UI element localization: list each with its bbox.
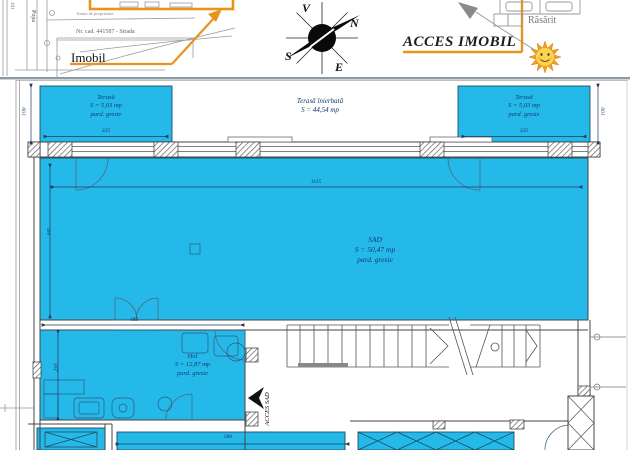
room-label-sad: SAD S = 50,47 mp pard. gresie: [310, 235, 440, 264]
rasarit-label: Răsărit: [528, 14, 556, 27]
room-name: Terasă înierbată: [250, 97, 390, 106]
room-name: Terasă: [458, 94, 590, 102]
dim-terrace-right-height: 100: [600, 102, 607, 122]
room-name: SAD: [310, 235, 440, 245]
acces-imobil-label: ACCES IMOBIL: [403, 33, 516, 53]
street-number-vertical: 101: [8, 2, 15, 10]
room-floor: pard. gresie: [310, 255, 440, 265]
staircase: [287, 317, 540, 375]
boundary-note: limita de proprietate: [77, 11, 114, 17]
imobil-label: Imobil: [71, 50, 106, 67]
floor-plan-screenshot: Imobil Nr. cad. 441587 - Strada limita d…: [0, 0, 630, 450]
wall-leaders: [590, 334, 626, 390]
room-label-terrace-green: Terasă înierbată S = 44,54 mp: [250, 97, 390, 115]
room-area: S = 12,87 mp: [145, 361, 240, 369]
room-name: Hol: [145, 353, 240, 361]
compass-icon: [286, 2, 360, 74]
cadastral-label: Nr. cad. 441587 - Strada: [76, 29, 135, 37]
compass-letter-e: E: [335, 60, 343, 76]
room-label-hol: Hol S = 12,87 mp pard. gresie: [145, 353, 240, 378]
room-floor: pard. gresie: [145, 370, 240, 378]
acces-sad-arrow: [248, 387, 264, 409]
dim-sad-height: 445: [46, 220, 53, 244]
dim-terrace-left-height: 100: [21, 102, 28, 122]
room-area: S = 44,54 mp: [250, 106, 390, 115]
compass-letter-n: N: [350, 16, 359, 32]
room-area: S = 5,03 mp: [40, 102, 172, 110]
room-floor: pard. gresie: [40, 111, 172, 119]
compass-letter-s: S: [285, 49, 292, 65]
sun-icon: [529, 41, 561, 73]
dim-parapet-width: 580: [198, 434, 258, 441]
corner-column: [568, 396, 594, 450]
dim-sad-width: 1115: [281, 179, 351, 186]
room-fills: [37, 86, 590, 450]
dim-hol-height: 233: [53, 357, 60, 379]
acces-sad-label: ACCES SAD: [264, 376, 272, 442]
parapet-right-fill: [358, 432, 514, 450]
dim-terrace-left-width: 335: [71, 128, 141, 135]
room-area: S = 50,47 mp: [310, 245, 440, 255]
dim-terrace-right-width: 335: [489, 128, 559, 135]
plan-linework: [0, 0, 630, 450]
room-label-terrace-right: Terasă S = 5,03 mp pard. gresie: [458, 94, 590, 119]
room-area: S = 5,03 mp: [458, 102, 590, 110]
room-name: Terasă: [40, 94, 172, 102]
site-plan-sketch: [3, 0, 235, 78]
street-name-vertical: Popa: [28, 10, 36, 22]
dim-hol-width: 485: [104, 317, 164, 324]
room-label-terrace-left: Terasă S = 5,03 mp pard. gresie: [40, 94, 172, 119]
room-floor: pard. gresie: [458, 111, 590, 119]
compass-letter-v: V: [302, 1, 310, 17]
